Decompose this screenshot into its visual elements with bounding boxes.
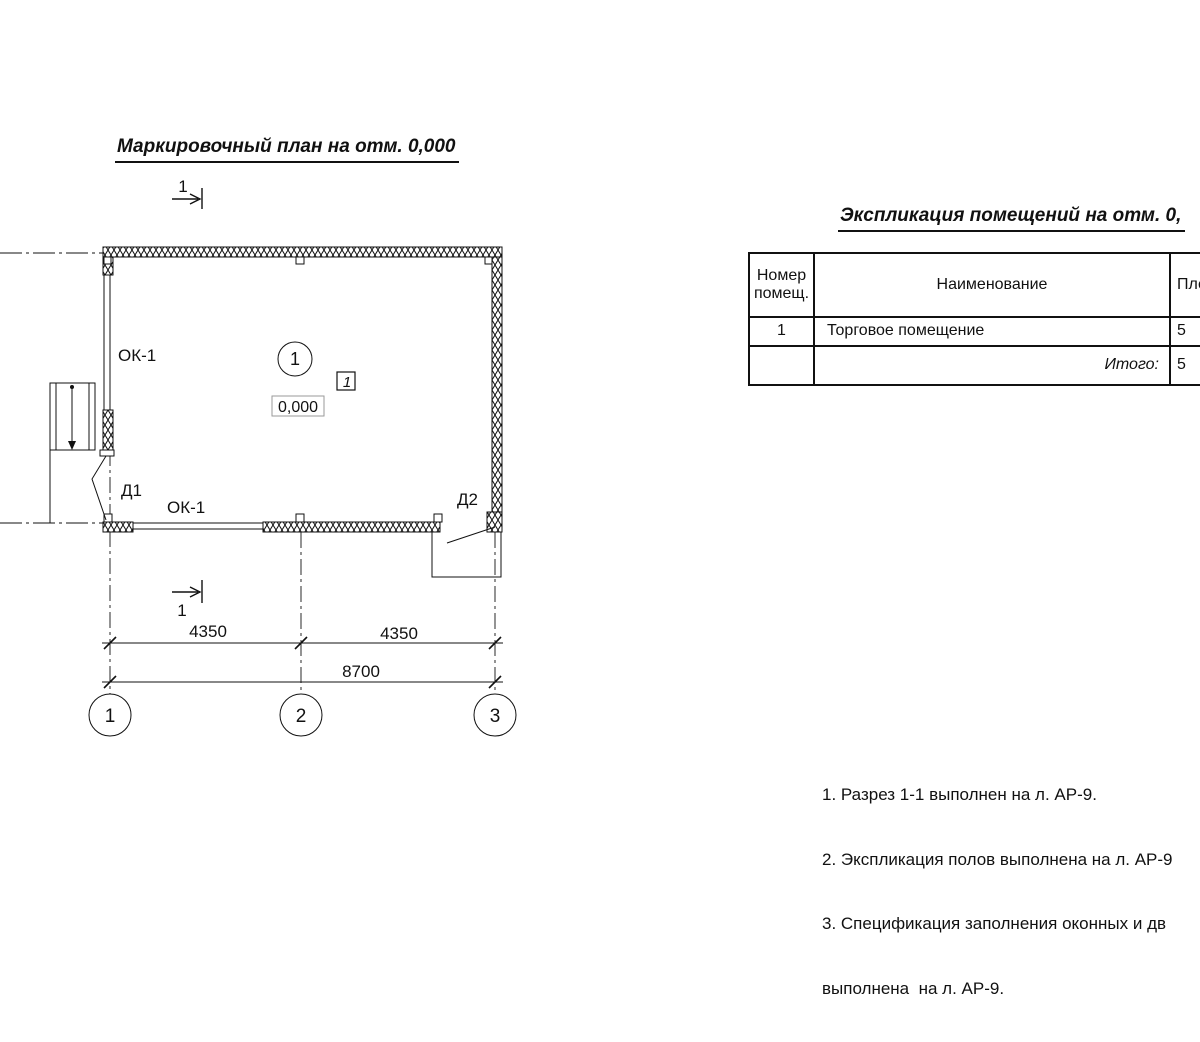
wall-caps bbox=[100, 257, 492, 522]
wall-bottom-middle bbox=[263, 522, 440, 532]
wall-cap bbox=[104, 257, 111, 264]
note-line-3: 3. Спецификация заполнения оконных и дв bbox=[822, 913, 1173, 935]
wall-cap bbox=[296, 514, 304, 522]
section-mark-top: 1 bbox=[172, 177, 202, 209]
door2-swing bbox=[447, 527, 495, 543]
section-label-bottom: 1 bbox=[177, 601, 186, 620]
wall-right bbox=[492, 257, 502, 532]
table-total-label: Итого: bbox=[815, 347, 1171, 384]
wall-cap bbox=[100, 450, 114, 456]
section-label-top: 1 bbox=[178, 177, 187, 196]
note-line-1: 1. Разрез 1-1 выполнен на л. АР-9. bbox=[822, 784, 1173, 806]
axis-number-2: 2 bbox=[296, 706, 307, 727]
plan-title: Маркировочный план на отм. 0,000 bbox=[115, 136, 459, 163]
wall-left-jamb bbox=[103, 410, 113, 452]
room-tag: 1 bbox=[343, 374, 351, 391]
dimension-lines bbox=[102, 643, 503, 682]
table-header-name: Наименование bbox=[815, 254, 1171, 318]
level-mark: 0,000 bbox=[278, 399, 318, 416]
dimension-ticks bbox=[104, 637, 501, 688]
note-line-4: выполнена на л. АР-9. bbox=[822, 978, 1173, 1000]
room-number: 1 bbox=[290, 349, 300, 369]
table-total-area: 5 bbox=[1171, 347, 1200, 384]
wall-bottom-left bbox=[103, 522, 133, 532]
notes-block: 1. Разрез 1-1 выполнен на л. АР-9. 2. Эк… bbox=[822, 741, 1173, 1042]
table-header-number: Номер помещ. bbox=[750, 254, 815, 318]
window-bottom-label: ОК-1 bbox=[167, 498, 205, 517]
axis-number-3: 3 bbox=[490, 706, 501, 727]
table-total-empty bbox=[750, 347, 815, 384]
axis-lines bbox=[110, 450, 495, 694]
note-line-2: 2. Экспликация полов выполнена на л. АР-… bbox=[822, 849, 1173, 871]
explication-table: Номер помещ. Наименование Пло 1 Торговое… bbox=[748, 252, 1200, 386]
walls bbox=[103, 247, 502, 532]
dim-text-right: 4350 bbox=[380, 624, 418, 643]
wall-cap bbox=[485, 257, 492, 264]
wall-cap bbox=[434, 514, 442, 522]
entrance-stairs bbox=[50, 383, 95, 523]
table-row-number: 1 bbox=[750, 318, 815, 347]
drawing-sheet: 1 1 1 1 0,000 ОК-1 Д1 ОК-1 Д2 bbox=[0, 0, 1200, 900]
section-mark-bottom: 1 bbox=[172, 580, 202, 620]
axis-number-1: 1 bbox=[105, 706, 116, 727]
table-row-name: Торговое помещение bbox=[815, 318, 1171, 347]
wall-cap bbox=[296, 257, 304, 264]
window-left bbox=[104, 275, 110, 410]
explication-title: Экспликация помещений на отм. 0, bbox=[838, 205, 1185, 232]
door2-label: Д2 bbox=[457, 490, 478, 509]
door1-label: Д1 bbox=[121, 481, 142, 500]
table-header-area: Пло bbox=[1171, 254, 1200, 318]
window-bottom bbox=[133, 523, 263, 529]
stairs-arrowhead-icon bbox=[68, 441, 76, 450]
dim-text-left: 4350 bbox=[189, 622, 227, 641]
stairs-start-dot bbox=[70, 385, 74, 389]
window-left-label: ОК-1 bbox=[118, 346, 156, 365]
table-row-area: 5 bbox=[1171, 318, 1200, 347]
dim-text-total: 8700 bbox=[342, 662, 380, 681]
porch-door2 bbox=[432, 532, 501, 577]
wall-top bbox=[103, 247, 502, 257]
door1-swing bbox=[92, 456, 106, 520]
